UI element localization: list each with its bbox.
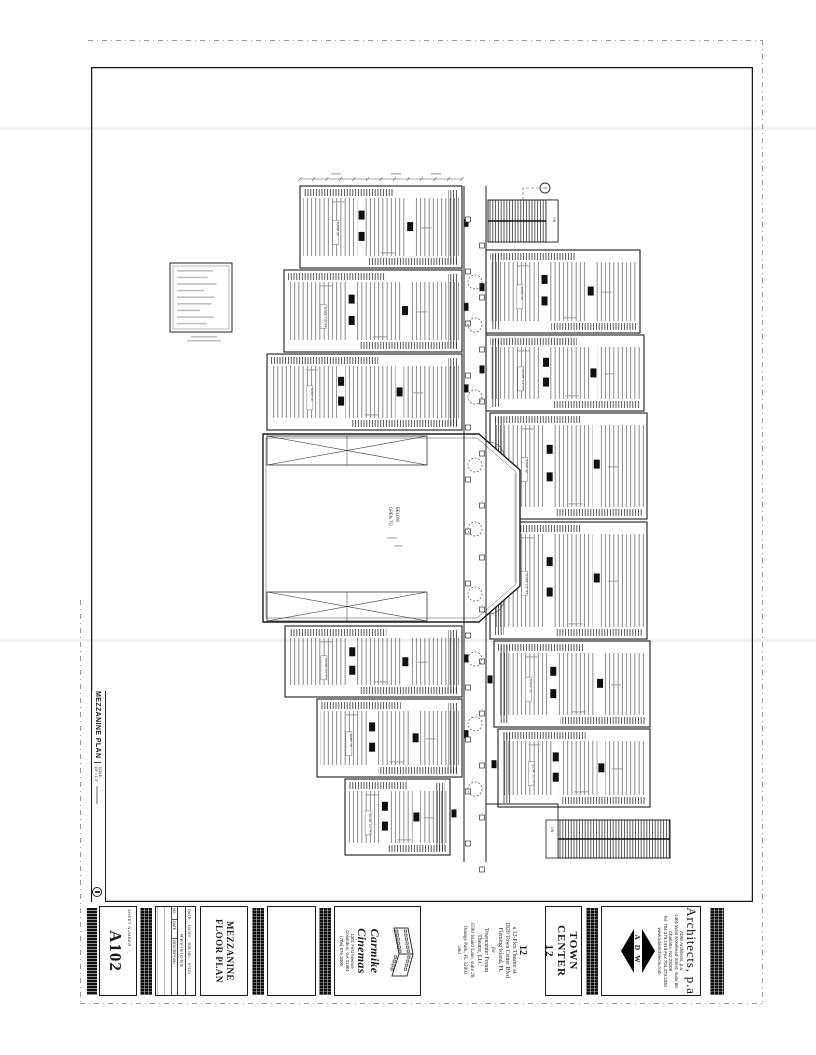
leader-line	[523, 188, 539, 200]
step-marker	[349, 316, 355, 325]
seat-rows	[489, 347, 641, 399]
aisle	[337, 366, 345, 418]
scanned-sheet: { "drawing_titlebar": { "title": "MEZZAN…	[0, 0, 816, 1055]
illegible-plan-text	[374, 681, 388, 683]
carmike-address-line: Columbus, GA 31901	[344, 907, 349, 995]
projection-port	[488, 675, 493, 683]
port-window	[480, 815, 485, 820]
illegible-plan-text	[177, 270, 213, 272]
north-arrow-icon	[93, 887, 103, 897]
aisle	[542, 347, 550, 399]
port-window	[480, 503, 485, 508]
ramp-hatch	[361, 687, 458, 694]
illegible-plan-text	[565, 395, 579, 397]
ramp-hatch	[351, 420, 458, 427]
ramp-hatch	[490, 338, 577, 345]
plan-label: SLOPE 1/2"/FT	[525, 573, 529, 594]
port-window	[480, 607, 485, 612]
port-window	[466, 737, 471, 742]
plan-label: OPEN TO	[388, 507, 393, 526]
step-marker	[369, 743, 375, 752]
illegible-plan-text	[332, 201, 344, 203]
column-grid-circle	[468, 390, 482, 404]
step-marker	[547, 445, 553, 454]
plan-label: RAMP UP	[525, 460, 529, 474]
illegible-plan-text	[608, 466, 618, 468]
project-title-line: 12	[545, 907, 554, 995]
titleblock-project-info: 12 a 12-Plex Theatre at 1820 Town Center…	[425, 906, 532, 996]
port-window	[466, 217, 471, 222]
illegible-plan-text	[528, 744, 540, 746]
seat-rows	[303, 198, 459, 256]
illegible-plan-text	[569, 503, 583, 505]
seat-rows	[288, 638, 459, 685]
ramp-hatch	[288, 273, 386, 280]
step-marker	[338, 377, 344, 386]
port-window	[466, 425, 471, 430]
trim-line-top	[88, 40, 763, 41]
aisle	[541, 262, 549, 321]
port-window	[466, 477, 471, 482]
aisle	[546, 425, 554, 507]
plan-label: BELOW	[395, 507, 400, 522]
plan-label: SLOPE 1/2"/FT	[324, 658, 328, 679]
illegible-plan-text	[191, 336, 217, 338]
illegible-plan-text	[320, 285, 332, 287]
step-marker	[413, 812, 419, 821]
entry-ramp-hatch	[499, 645, 508, 723]
illegible-plan-text	[331, 173, 341, 175]
seat-rows	[270, 366, 459, 418]
project-title-line: CENTER	[555, 907, 566, 995]
entry-ramp-hatch	[448, 190, 457, 264]
architect-address-line: Tel. 704.379.1919 Fax 704.379.1920	[662, 907, 667, 995]
illegible-plan-text	[572, 711, 586, 713]
aisle	[381, 791, 389, 843]
entry-ramp-hatch	[436, 783, 445, 851]
illegible-plan-text	[177, 323, 207, 325]
illegible-plan-text	[605, 373, 615, 375]
illegible-plan-text	[521, 537, 533, 539]
entry-ramp-hatch	[491, 254, 500, 329]
entry-ramp-hatch	[491, 339, 500, 407]
illegible-plan-text	[306, 369, 318, 371]
illegible-plan-text	[574, 791, 588, 793]
step-marker	[407, 222, 413, 231]
illegible-plan-text	[177, 310, 200, 312]
step-marker	[338, 397, 344, 406]
entry-ramp-hatch	[503, 733, 512, 803]
port-window	[480, 555, 485, 560]
titleblock-sheet-title: MEZZANINE FLOOR PLAN	[200, 906, 248, 996]
entry-ramp-hatch	[448, 703, 457, 773]
port-window	[466, 841, 471, 846]
step-marker	[359, 211, 365, 220]
ramp-hatch	[502, 732, 586, 739]
ramp-hatch	[271, 357, 378, 364]
port-window	[480, 451, 485, 456]
illegible-plan-text	[366, 794, 378, 796]
mezzanine-floor-plan: RAMP UPSLOPE 1/2"/FTRAMP UPSLOPE 1/2"/FT…	[91, 67, 753, 902]
entry-ramp-hatch	[448, 358, 457, 426]
project-number: 12	[517, 906, 527, 994]
step-marker	[349, 666, 355, 675]
ramp-hatch	[557, 629, 643, 636]
column-grid-circle	[468, 717, 482, 731]
carmike-filmstrip-logo	[386, 918, 416, 984]
sheet-number-label: SHEET NUMBER	[127, 907, 134, 995]
project-line: 1820 Town Center Blvd	[503, 906, 510, 994]
plan-label: RAMP UP	[528, 679, 532, 693]
date-job-row: DATE: 1/17/07 JOB NO.: 07121	[185, 907, 193, 995]
adw-diamond-logo: ADW	[621, 928, 655, 974]
step-marker	[397, 387, 403, 396]
step-marker	[547, 557, 553, 566]
step-marker	[547, 588, 553, 597]
port-window	[466, 789, 471, 794]
revision-row-empty	[157, 907, 164, 995]
port-window	[466, 269, 471, 274]
step-marker	[553, 752, 559, 761]
port-window	[480, 243, 485, 248]
illegible-plan-text	[418, 311, 428, 313]
step-marker	[402, 657, 408, 666]
illegible-plan-text	[413, 392, 423, 394]
ramp-hatch	[494, 416, 580, 423]
plan-label: RAMP UP	[336, 222, 340, 236]
plan-label: SLOPE 1/2"/FT	[521, 369, 525, 390]
revision-row-empty	[164, 907, 171, 995]
illegible-stamp-band	[710, 908, 724, 995]
aisle	[549, 653, 557, 715]
port-window	[480, 295, 485, 300]
drawing-scale: SCALE: 1/8" = 1'-0"	[94, 762, 101, 782]
step-marker	[369, 722, 375, 731]
illegible-plan-text	[563, 317, 577, 319]
sheet-title-line: MEZZANINE	[224, 907, 235, 995]
architect-name: Architects, p.a	[684, 907, 698, 995]
illegible-plan-text	[177, 296, 215, 298]
ramp-hatch	[369, 258, 458, 265]
illegible-plan-text	[422, 227, 432, 229]
step-marker	[550, 689, 556, 698]
illegible-plan-text	[525, 656, 537, 658]
step-marker	[590, 368, 596, 377]
step-marker	[382, 802, 388, 811]
projection-port	[480, 365, 485, 373]
ramp-hatch	[557, 509, 643, 516]
port-window	[466, 529, 471, 534]
ramp-hatch	[490, 253, 575, 260]
step-marker	[542, 275, 548, 284]
port-window	[466, 633, 471, 638]
projection-port	[452, 809, 457, 817]
step-marker	[594, 460, 600, 469]
aisle	[358, 198, 366, 256]
client-line: Orange Park, FL 32003	[462, 906, 469, 994]
illegible-plan-text	[346, 714, 358, 716]
trim-line-bottom	[80, 1003, 763, 1004]
illegible-plan-text	[373, 336, 387, 338]
seat-rows	[320, 711, 459, 765]
step-marker	[550, 667, 556, 676]
illegible-plan-text	[602, 292, 612, 294]
client-line: 1590 Island Lane, suite 28	[469, 906, 476, 994]
step-marker	[594, 573, 600, 582]
plan-label: RAMP UP	[520, 287, 524, 301]
seat-rows	[489, 262, 637, 321]
port-window	[466, 581, 471, 586]
illegible-plan-text	[569, 623, 583, 625]
step-marker	[413, 733, 419, 742]
revisions-header: REVISIONS	[177, 907, 185, 995]
illegible-plan-text	[177, 283, 217, 285]
client-line: Towncenter Forum	[482, 906, 489, 994]
illegible-stamp-band	[252, 908, 264, 995]
plan-label: SLOPE 1/2"/FT	[531, 764, 535, 785]
plan-label: DN	[552, 217, 556, 223]
scan-fold-line	[0, 127, 816, 130]
step-marker	[359, 232, 365, 241]
sheet-number-value: A102	[105, 907, 125, 995]
illegible-stamp-band	[87, 908, 97, 995]
drawing-title: MEZZANINE PLAN	[94, 691, 101, 758]
project-title-line: TOWN	[567, 907, 578, 995]
illegible-plan-text	[611, 684, 621, 686]
illegible-plan-text	[390, 761, 404, 763]
port-window	[480, 347, 485, 352]
ramp-hatch	[560, 717, 646, 724]
illegible-plan-text	[543, 187, 548, 189]
step-marker	[553, 773, 559, 782]
carmike-name: Carmike Cinemas	[355, 907, 381, 995]
illegible-plan-text	[518, 350, 530, 352]
step-marker	[402, 306, 408, 315]
illegible-stamp-band	[586, 908, 598, 995]
illegible-plan-text	[431, 173, 441, 175]
titleblock-sheet-number: SHEET NUMBER A102	[99, 906, 137, 996]
ramp-hatch	[289, 629, 386, 636]
step-marker	[349, 647, 355, 656]
projection-port	[492, 760, 497, 768]
ramp-hatch	[562, 797, 646, 804]
drawing-titlebar: MEZZANINE PLAN SCALE: 1/8" = 1'-0"	[92, 691, 106, 902]
illegible-plan-text	[521, 428, 533, 430]
titleblock-project-title: TOWN CENTER 12	[545, 906, 582, 996]
titleblock-revisions: DATE: 1/17/07 JOB NO.: 07121 REVISIONS N…	[155, 906, 196, 996]
port-window	[480, 867, 485, 872]
aisle	[368, 711, 376, 765]
seat-rows	[497, 653, 647, 715]
projection-port	[480, 283, 485, 291]
step-marker	[542, 296, 548, 305]
illegible-plan-text	[608, 581, 618, 583]
step-marker	[543, 358, 549, 367]
aisle	[552, 741, 560, 795]
seat-rows	[287, 282, 459, 340]
column-grid-circle	[468, 275, 482, 289]
titleblock-carmike: Carmike Cinemas 1301 First Avenue Columb…	[334, 906, 421, 996]
stair-landing	[546, 820, 558, 858]
illegible-plan-text	[177, 290, 204, 292]
port-window	[480, 711, 485, 716]
illegible-plan-text	[612, 768, 622, 770]
illegible-plan-text	[177, 316, 214, 318]
illegible-plan-text	[177, 303, 211, 305]
seat-rows	[501, 741, 647, 795]
ramp-hatch	[360, 342, 458, 349]
ramp-hatch	[498, 644, 584, 651]
step-marker	[543, 378, 549, 387]
ramp-hatch	[349, 782, 407, 789]
entry-ramp-hatch	[448, 274, 457, 348]
step-marker	[598, 763, 604, 772]
and-label: and	[455, 906, 462, 994]
illegible-plan-text	[391, 173, 401, 175]
revisions-columns: NO. DATE DESCRIPTION	[171, 907, 177, 995]
step-marker	[349, 295, 355, 304]
illegible-plan-text	[394, 545, 402, 547]
plan-label: SLOPE 1/2"/FT	[368, 813, 372, 834]
carmike-address-line: (706) 576-3400	[339, 907, 344, 995]
illegible-plan-text	[517, 265, 529, 267]
scan-fold-line	[0, 639, 816, 642]
illegible-stamp-band	[319, 908, 331, 995]
ramp-hatch	[304, 189, 393, 196]
adw-letters: ADW	[633, 928, 642, 974]
ramp-hatch	[321, 702, 401, 709]
step-marker	[547, 472, 553, 481]
project-line: a 12-Plex Theatre at	[510, 906, 517, 994]
for-label: for	[489, 906, 496, 994]
client-line: Theatre, LLC	[475, 906, 482, 994]
port-window	[466, 373, 471, 378]
ramp-hatch	[551, 323, 636, 330]
project-line: Fleming Island, FL	[496, 906, 503, 994]
plan-label: DN	[550, 827, 554, 833]
illegible-plan-text	[187, 340, 221, 342]
illegible-plan-text	[387, 537, 397, 539]
aisle	[348, 638, 356, 685]
illegible-plan-text	[398, 839, 412, 841]
aisle	[348, 282, 356, 340]
port-window	[466, 685, 471, 690]
architect-address-line: 1401 West Morehead Street, Suite 50	[673, 907, 678, 995]
step-marker	[588, 287, 594, 296]
illegible-plan-text	[177, 277, 208, 279]
titleblock-blank-panel	[267, 906, 316, 996]
step-marker	[597, 679, 603, 688]
plan-label: RAMP UP	[310, 388, 314, 402]
illegible-plan-text	[424, 817, 434, 819]
sheet-title-line: FLOOR PLAN	[213, 907, 224, 995]
titleblock-architect: Architects, p.a ADW Architects, p.a. 140…	[601, 906, 701, 996]
revision-row-empty	[155, 907, 157, 995]
carmike-address-line: 1301 First Avenue	[350, 907, 355, 995]
illegible-plan-text	[418, 662, 428, 664]
ramp-hatch	[553, 401, 640, 408]
illegible-plan-text	[426, 738, 436, 740]
illegible-stamp-band	[140, 908, 152, 995]
plan-label: RAMP UP	[349, 734, 353, 748]
step-marker	[382, 822, 388, 831]
aisle	[546, 534, 554, 627]
plan-label: SLOPE 1/2"/FT	[323, 306, 327, 327]
trim-line-right	[762, 40, 763, 1003]
illegible-note	[97, 786, 99, 804]
ramp-hatch	[378, 767, 458, 774]
port-window	[480, 763, 485, 768]
illegible-plan-text	[365, 414, 379, 416]
illegible-plan-text	[381, 252, 395, 254]
trim-line-left	[80, 600, 81, 1004]
